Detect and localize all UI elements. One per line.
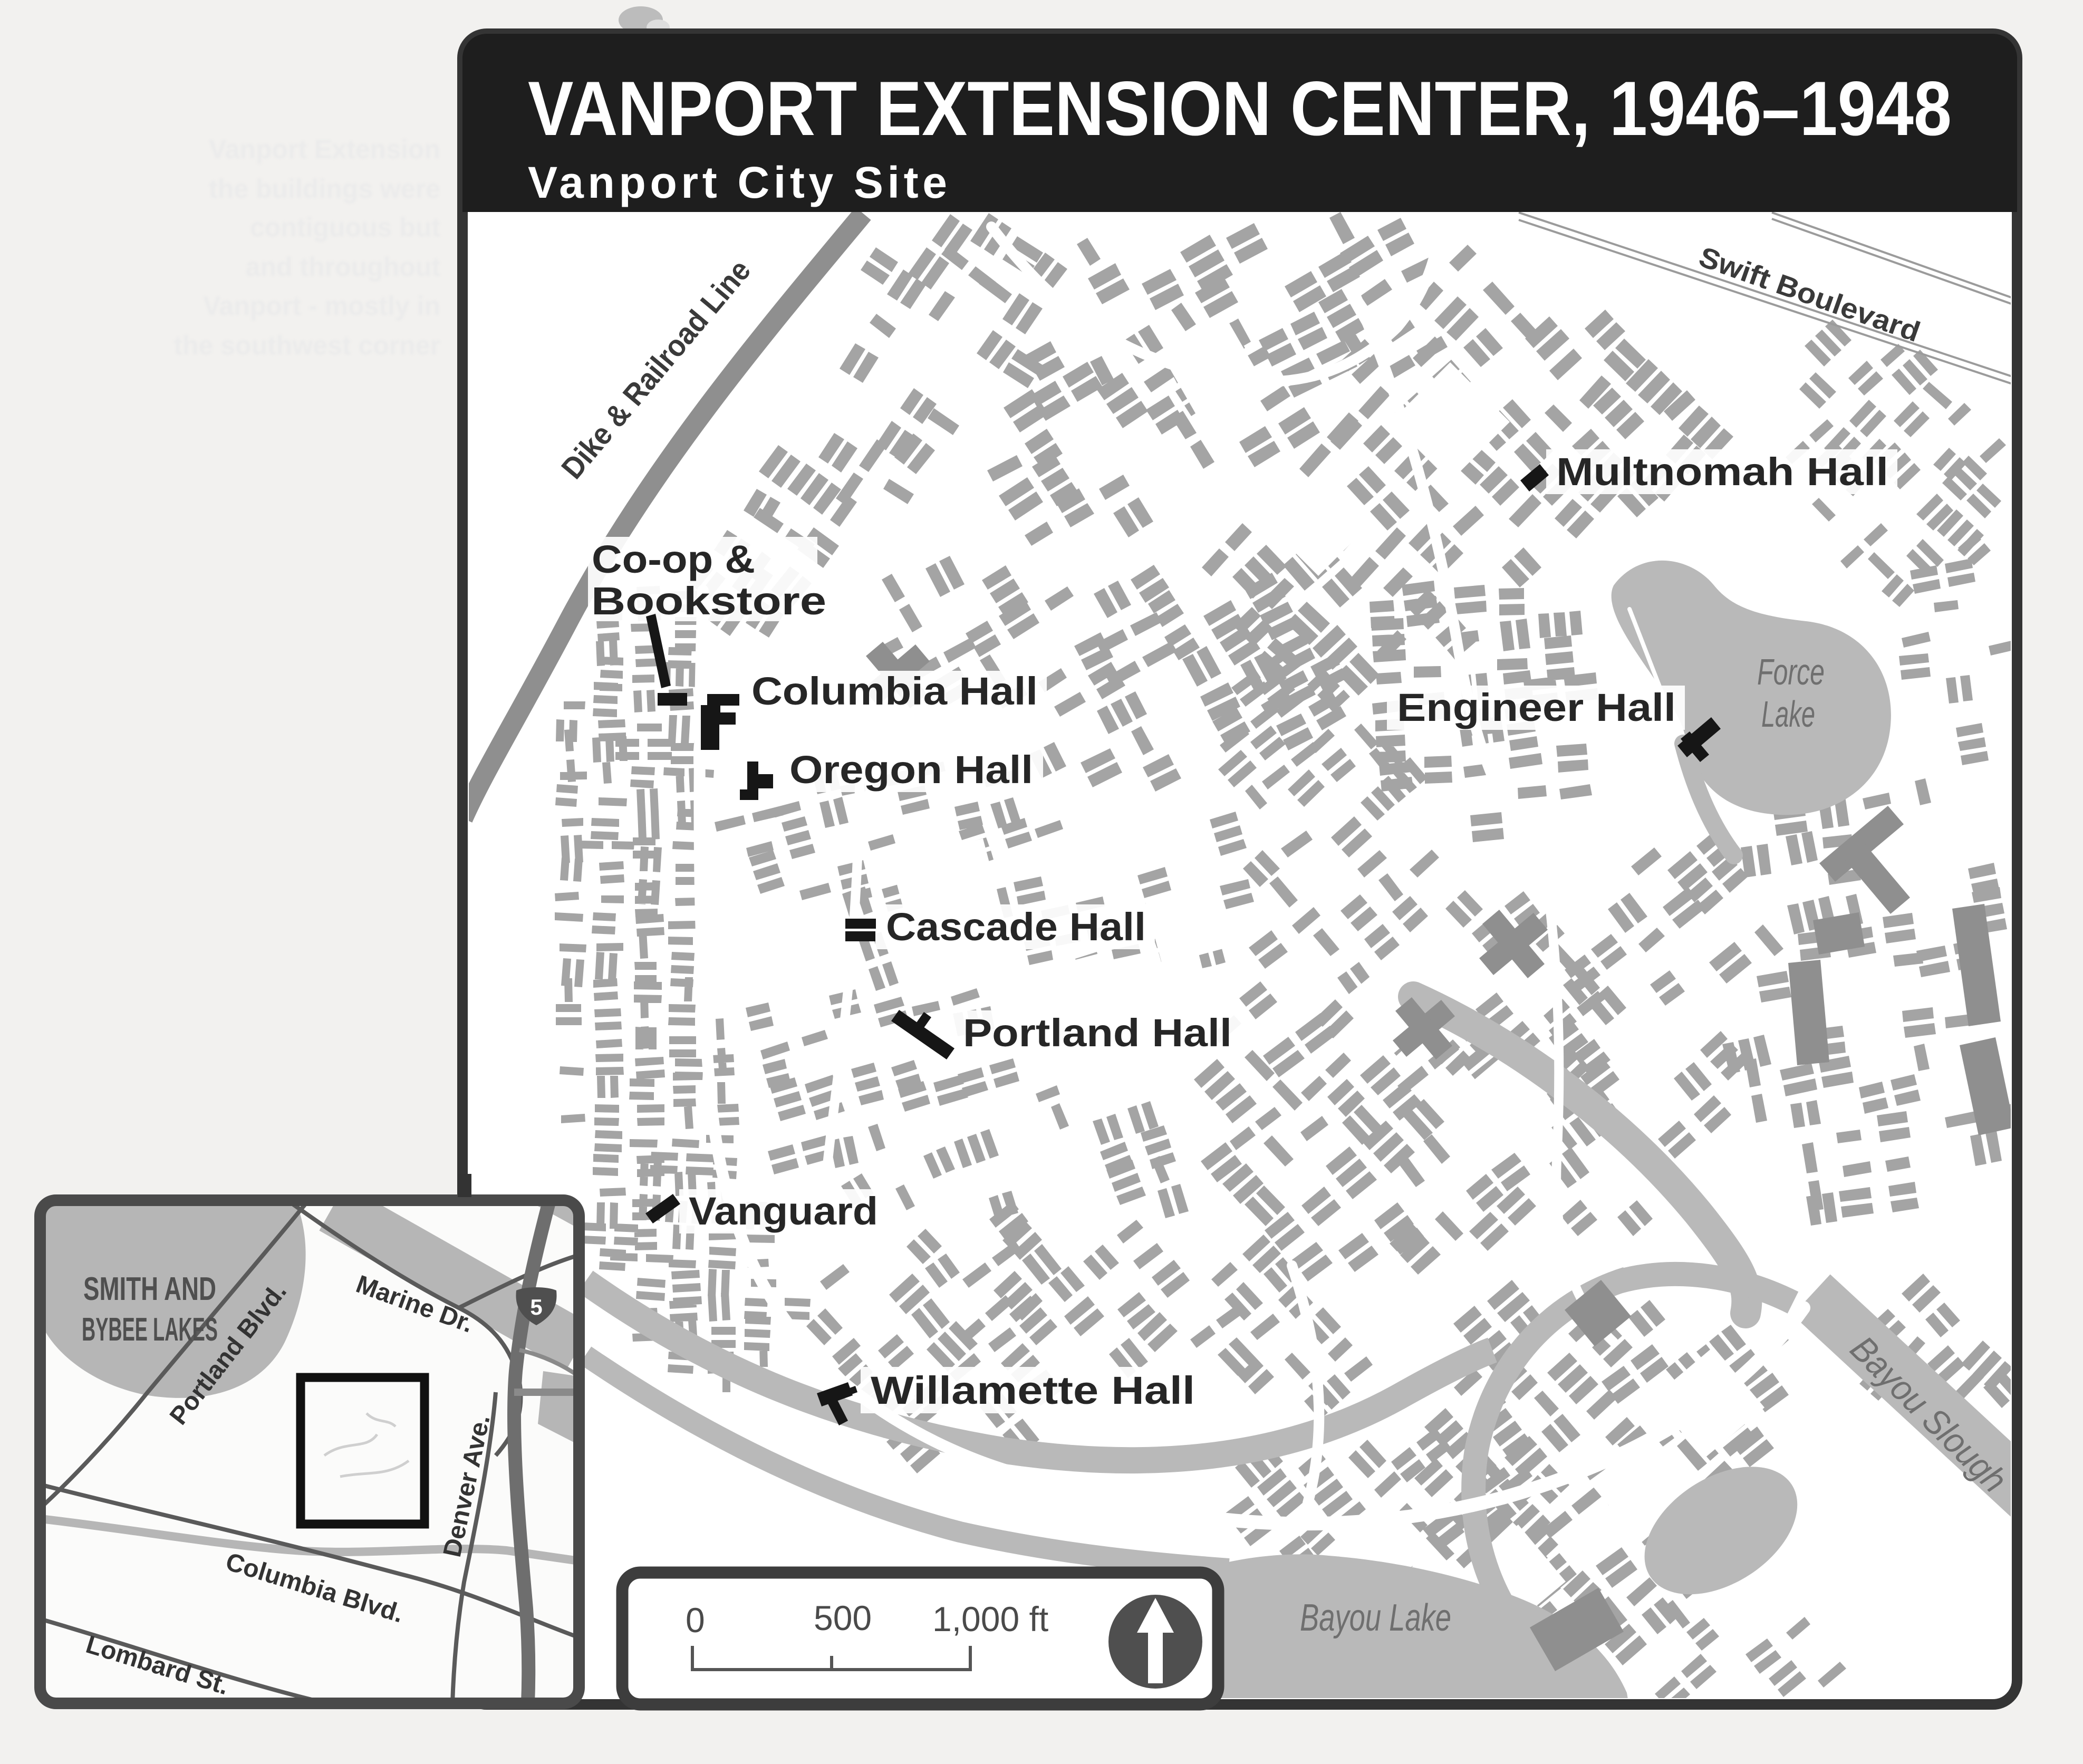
svg-text:Oregon Hall: Oregon Hall (789, 748, 1033, 792)
svg-text:Bayou Lake: Bayou Lake (1300, 1597, 1451, 1639)
svg-text:and throughout: and throughout (246, 252, 441, 282)
svg-text:SMITH AND: SMITH AND (83, 1271, 216, 1307)
svg-text:Lake: Lake (1761, 693, 1815, 735)
svg-text:Co-op &: Co-op & (592, 537, 755, 581)
svg-text:Portland Hall: Portland Hall (963, 1011, 1232, 1055)
svg-text:the southwest corner: the southwest corner (173, 331, 440, 360)
svg-text:5: 5 (530, 1295, 542, 1319)
svg-text:500: 500 (814, 1598, 872, 1637)
svg-text:BYBEE LAKES: BYBEE LAKES (82, 1312, 218, 1348)
svg-text:VANPORT EXTENSION CENTER, 194: VANPORT EXTENSION CENTER, 1946–1948 (528, 65, 1952, 151)
svg-text:Willamette Hall: Willamette Hall (871, 1368, 1195, 1412)
svg-text:Columbia Hall: Columbia Hall (751, 669, 1038, 713)
svg-text:Engineer Hall: Engineer Hall (1397, 686, 1676, 729)
svg-text:0: 0 (686, 1601, 705, 1640)
svg-text:contiguous but: contiguous but (250, 213, 440, 242)
svg-text:the buildings were: the buildings were (209, 174, 440, 204)
svg-text:Multnomah Hall: Multnomah Hall (1556, 450, 1888, 494)
svg-text:Vanguard: Vanguard (689, 1189, 878, 1233)
svg-text:1,000 ft: 1,000 ft (932, 1599, 1048, 1638)
svg-text:Cascade Hall: Cascade Hall (886, 905, 1146, 949)
svg-text:Force: Force (1757, 651, 1825, 692)
svg-text:Vanport - mostly in: Vanport - mostly in (203, 291, 440, 321)
svg-text:Vanport Extension: Vanport Extension (209, 134, 440, 164)
svg-text:Bookstore: Bookstore (591, 579, 826, 623)
